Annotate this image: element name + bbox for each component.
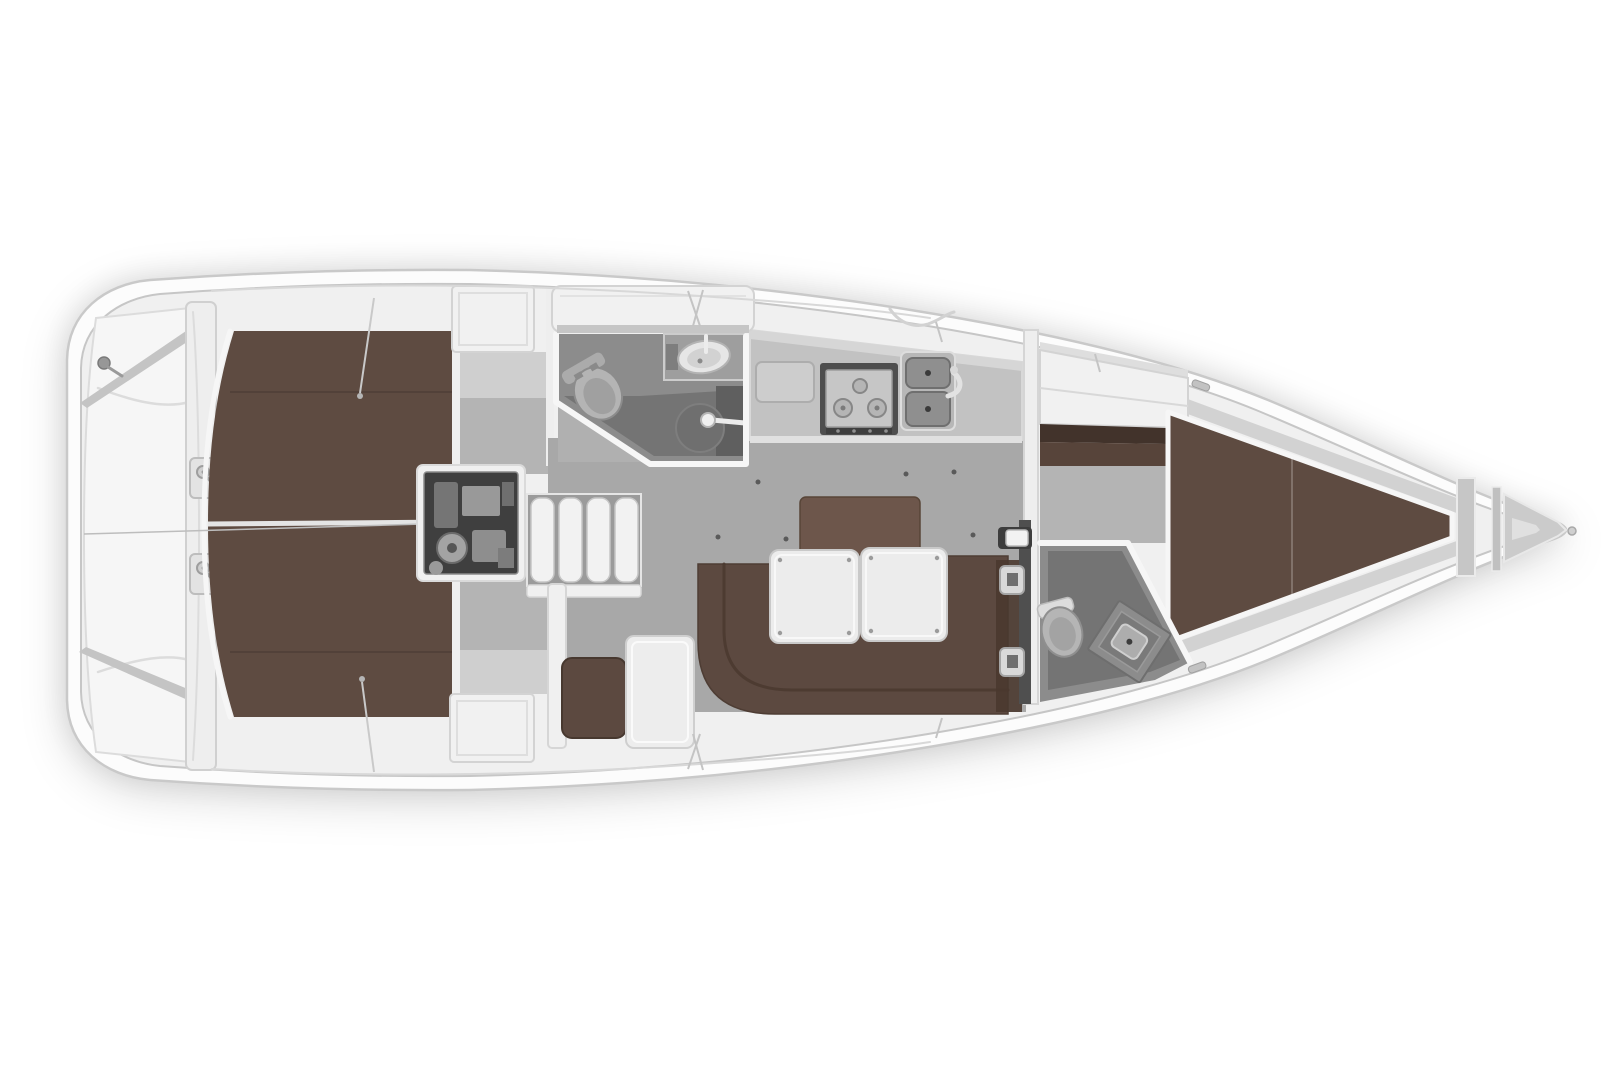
engine-compartment bbox=[417, 465, 525, 581]
forward-cabin-floor bbox=[1040, 466, 1166, 543]
bulkhead-latch-lower bbox=[1000, 648, 1024, 676]
table-screw bbox=[869, 556, 873, 560]
table-top bbox=[770, 550, 859, 643]
step bbox=[587, 498, 610, 582]
floor-screw bbox=[784, 537, 789, 542]
aft-heads-cabinet-underside bbox=[557, 325, 749, 333]
basin-drain bbox=[698, 359, 703, 364]
aft-cabin-port-wardrobe bbox=[452, 286, 534, 352]
stove-knob bbox=[836, 429, 840, 433]
yacht-floorplan bbox=[0, 0, 1620, 1080]
nav-seat bbox=[562, 658, 626, 738]
engine-part bbox=[462, 486, 500, 516]
engine-part bbox=[429, 561, 443, 575]
bow-partition bbox=[1492, 487, 1501, 571]
galley-sink bbox=[901, 352, 960, 430]
engine-part bbox=[502, 482, 514, 506]
floor-screw bbox=[756, 480, 761, 485]
shower-pan bbox=[676, 404, 724, 452]
vanity-hatch bbox=[666, 344, 678, 370]
burner-center bbox=[841, 406, 846, 411]
forward-wardrobe bbox=[1040, 442, 1166, 466]
bulkhead-latch-upper bbox=[1000, 566, 1024, 594]
latch-slot bbox=[1007, 573, 1018, 586]
table-screw bbox=[778, 631, 782, 635]
aft-cabin-port-floor bbox=[460, 398, 548, 474]
steps-sill bbox=[527, 585, 641, 597]
backstay-bottom-end bbox=[359, 676, 365, 682]
burner-center bbox=[875, 406, 880, 411]
faucet-base bbox=[950, 366, 958, 374]
galley-cutting-board bbox=[756, 362, 814, 402]
bow-bulkhead bbox=[1457, 478, 1475, 576]
stove-burner bbox=[853, 379, 867, 393]
galley-stove bbox=[820, 363, 898, 435]
engine-part bbox=[498, 548, 514, 568]
stove-controls bbox=[826, 428, 892, 434]
stove-knob bbox=[868, 429, 872, 433]
galley-counter-front-trim bbox=[750, 436, 1022, 443]
bow-fitting bbox=[1568, 527, 1576, 535]
table-screw bbox=[778, 558, 782, 562]
table-screw bbox=[847, 558, 851, 562]
table-screw bbox=[935, 629, 939, 633]
bow-area bbox=[1457, 478, 1576, 576]
table-screw bbox=[869, 629, 873, 633]
transom-stowage bbox=[79, 302, 216, 770]
heads-door-handle bbox=[1006, 530, 1028, 546]
table-top bbox=[861, 548, 947, 641]
sink-drain bbox=[925, 406, 931, 412]
aft-cabin-port-floor-light bbox=[460, 352, 548, 398]
saloon-table-right bbox=[861, 548, 947, 641]
shower-head bbox=[701, 413, 715, 427]
companionway-steps bbox=[527, 494, 641, 597]
backstay-top-end bbox=[357, 393, 363, 399]
floor-screw bbox=[971, 533, 976, 538]
table-screw bbox=[935, 556, 939, 560]
step bbox=[531, 498, 554, 582]
saloon-table-left bbox=[770, 550, 859, 643]
step bbox=[615, 498, 638, 582]
floor-screw bbox=[952, 470, 957, 475]
settee-backrest bbox=[800, 497, 920, 555]
yacht-floorplan-canvas bbox=[0, 0, 1620, 1080]
floor-screw bbox=[716, 535, 721, 540]
sink-drain bbox=[925, 370, 931, 376]
floor-screw bbox=[904, 472, 909, 477]
step bbox=[559, 498, 582, 582]
engine-pulley-hub bbox=[447, 543, 457, 553]
engine-part bbox=[434, 482, 458, 528]
chart-table bbox=[626, 636, 694, 748]
table-screw bbox=[847, 631, 851, 635]
aft-cabin-starboard-wardrobe bbox=[450, 694, 534, 762]
aft-cabin-starboard-floor-light bbox=[460, 650, 548, 694]
latch-slot bbox=[1007, 655, 1018, 668]
stove-knob bbox=[852, 429, 856, 433]
aft-heads-sink-area bbox=[664, 334, 746, 380]
shower-arm bbox=[712, 420, 745, 423]
stove-knob bbox=[884, 429, 888, 433]
